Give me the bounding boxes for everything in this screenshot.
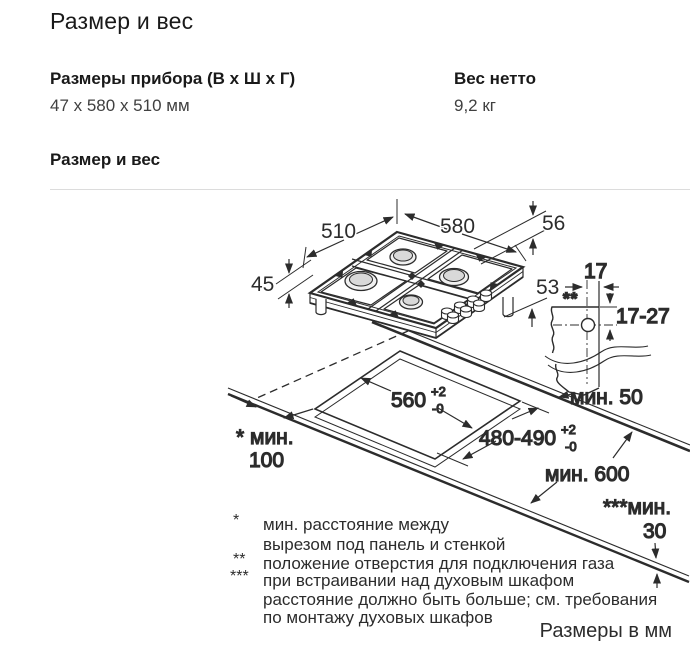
svg-text:***мин.: ***мин. xyxy=(603,496,671,519)
footnote-3-marker: *** xyxy=(230,568,249,586)
svg-text:мин. 600: мин. 600 xyxy=(545,463,629,486)
break-line xyxy=(545,346,648,363)
footnote-1-marker: * xyxy=(233,512,239,530)
svg-text:580: 580 xyxy=(440,215,475,238)
dim-min-100: * мин. 100 xyxy=(231,396,313,472)
worktop-rear-edge xyxy=(372,316,690,445)
footnote-3-line-1: при встраивании над духовым шкафом xyxy=(263,571,574,591)
svg-text:-0: -0 xyxy=(565,439,577,454)
hob-isometric-view xyxy=(310,232,523,338)
svg-text:30: 30 xyxy=(643,520,666,543)
dim-56: 56 xyxy=(474,201,565,264)
units-note: Размеры в мм xyxy=(400,620,672,643)
svg-text:480-490: 480-490 xyxy=(479,427,556,450)
svg-text:56: 56 xyxy=(542,212,565,235)
hob-outer-frame xyxy=(310,232,523,328)
product-spec-page: { "page": { "title": "Размер и вес" }, "… xyxy=(0,0,690,651)
footnote-3-line-2: расстояние должно быть больше; см. требо… xyxy=(263,590,657,610)
dim-min-30: ***мин. 30 xyxy=(603,496,671,588)
svg-text:53: 53 xyxy=(536,276,559,299)
footnote-2-marker: ** xyxy=(233,551,245,569)
burner-right xyxy=(440,269,469,286)
svg-text:17-27: 17-27 xyxy=(616,305,670,328)
footnote-1-line-2: вырезом под панель и стенкой xyxy=(263,535,505,555)
gas-connection-detail: 17 ** 17-27 xyxy=(545,260,670,395)
svg-text:* мин.: * мин. xyxy=(236,426,294,449)
svg-text:мин. 50: мин. 50 xyxy=(570,386,643,409)
svg-text:510: 510 xyxy=(321,220,356,243)
svg-text:**: ** xyxy=(563,289,578,308)
burner-left xyxy=(345,272,377,291)
footnote-1-line-1: мин. расстояние между xyxy=(263,515,449,535)
svg-text:100: 100 xyxy=(249,449,284,472)
dim-cutout-560: 560 +2 -0 xyxy=(361,378,472,428)
dim-min-50: мин. 50 xyxy=(559,386,643,409)
svg-text:17: 17 xyxy=(584,260,607,283)
burner-front xyxy=(400,295,423,309)
dim-cutout-480-490: 480-490 +2 -0 xyxy=(437,402,577,466)
svg-text:+2: +2 xyxy=(561,422,576,437)
gas-hole xyxy=(582,319,595,332)
svg-text:-0: -0 xyxy=(432,401,444,416)
svg-text:+2: +2 xyxy=(431,384,446,399)
svg-text:45: 45 xyxy=(251,273,274,296)
svg-text:560: 560 xyxy=(391,389,426,412)
burner-back xyxy=(390,249,416,265)
